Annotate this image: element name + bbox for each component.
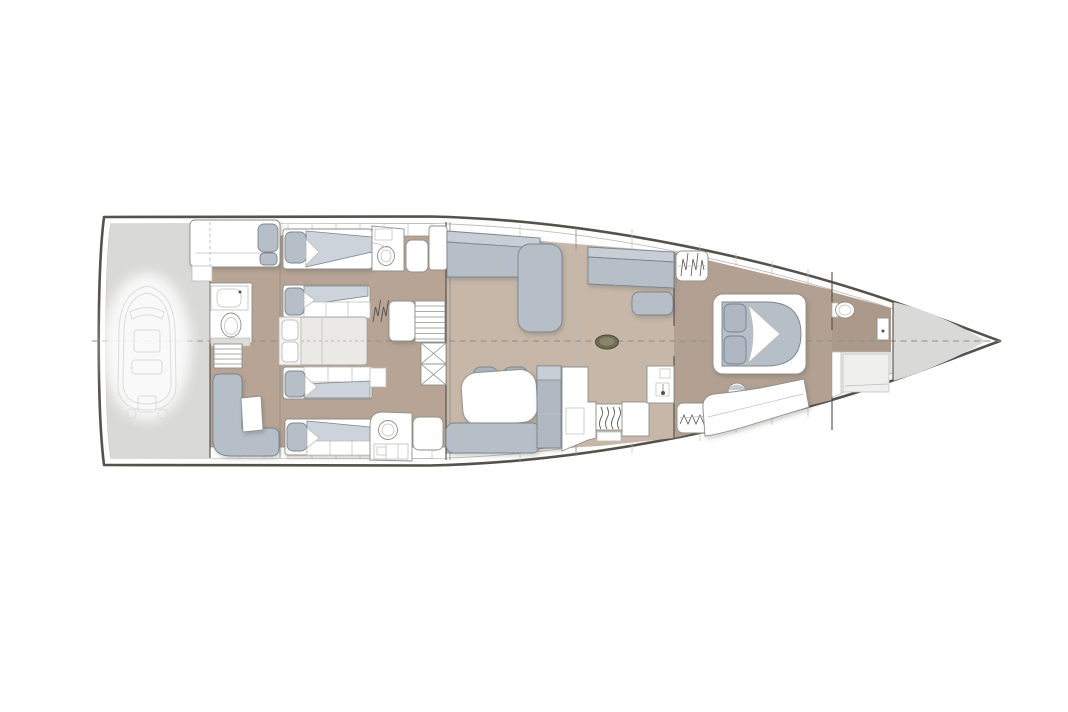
dining-bench — [446, 423, 540, 453]
salon-sofa-fwd — [588, 247, 674, 288]
galley-counter-fwd — [622, 402, 649, 436]
owner-pillow-2 — [724, 336, 746, 364]
cross-lockers — [421, 343, 446, 385]
nightstand — [370, 368, 386, 387]
yacht-floorplan-drawing — [0, 0, 1068, 712]
berth-1-foot-locker — [192, 266, 212, 281]
companionway-cabinet — [389, 301, 415, 341]
dining-table — [460, 368, 539, 426]
center-double-berth — [279, 317, 367, 365]
stove — [596, 404, 623, 441]
toilet-stbd-aft — [221, 313, 241, 337]
cabinet-b — [413, 417, 443, 450]
lounge-table — [241, 396, 263, 432]
yacht-floorplan-page — [0, 0, 1068, 712]
aft-starboard-head — [370, 412, 412, 461]
berth-3 — [283, 285, 370, 318]
galley-sink-unit — [647, 366, 674, 403]
tender-garage — [103, 273, 191, 421]
toilet-forward — [836, 302, 855, 318]
aft-stairs — [214, 344, 242, 368]
mast-base — [596, 335, 619, 349]
berth-4-pillow — [285, 371, 305, 397]
ottoman — [632, 292, 673, 315]
hanging-locker-top — [676, 251, 708, 281]
cabinet-a — [406, 240, 428, 272]
shower-strip — [832, 352, 841, 397]
berth-1-cushion — [260, 253, 277, 265]
faucet — [661, 391, 665, 395]
dinghy-glow — [103, 273, 191, 421]
berth-2-pillow — [285, 232, 306, 263]
berth-1-pillow — [258, 224, 278, 252]
bow-sail-locker — [893, 302, 986, 381]
toilet-port-aft — [378, 247, 395, 266]
berth-3-pillow — [285, 288, 304, 315]
wardrobe-a — [429, 226, 447, 270]
sink-stbd-aft — [379, 421, 398, 440]
aft-port-head — [372, 226, 404, 271]
center-bed-pillow-1 — [282, 320, 298, 340]
aft-starboard-bathroom — [210, 283, 252, 346]
shower-pan — [843, 354, 889, 392]
center-bed-pillow-2 — [282, 342, 298, 362]
berth-4 — [283, 367, 372, 399]
berth-5-pillow — [287, 423, 307, 451]
owner-pillow-1 — [724, 304, 746, 332]
companionway-stairs — [415, 301, 445, 342]
head-panel — [877, 318, 889, 340]
